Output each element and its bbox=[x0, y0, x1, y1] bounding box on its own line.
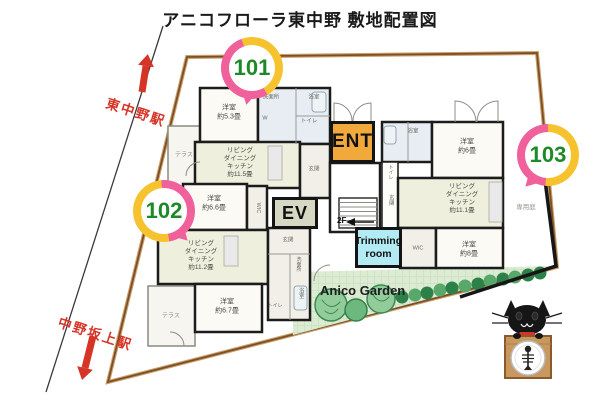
room-label-ldk-103: リビング ダイニング キッチン 約11.1畳 bbox=[446, 183, 479, 216]
page-title: アニコフローラ東中野 敷地配置図 bbox=[0, 6, 600, 31]
unit-number-103: 103 bbox=[525, 132, 571, 178]
room-label-wic-103: WIC bbox=[413, 246, 424, 253]
room-label-genkan-103: 玄関 bbox=[387, 195, 393, 206]
room-label-ldk-102: リビング ダイニング キッチン 約11.2畳 bbox=[185, 240, 218, 273]
unit-marker-101[interactable]: 101 bbox=[221, 37, 283, 99]
room-label-toilet-101: トイレ bbox=[301, 119, 318, 126]
trimming-room-box: Trimming room bbox=[355, 227, 402, 268]
room-label-bed1-102: 洋室 約6.6畳 bbox=[202, 195, 226, 213]
anico-garden-label: Anico Garden bbox=[320, 283, 405, 298]
room-label-closet-101: W bbox=[262, 116, 267, 123]
room-label-bath-102: 浴室 bbox=[297, 288, 303, 299]
room-label-bath-103: 浴室 bbox=[407, 129, 418, 136]
room-label-wic-102: WIC bbox=[254, 203, 260, 214]
room-label-terrace-101: テラス bbox=[175, 152, 193, 160]
floor2-label: 2F bbox=[337, 216, 346, 225]
room-label-bed-101: 洋室 約5.3畳 bbox=[217, 104, 241, 122]
room-label-toilet-102: トイレ bbox=[267, 303, 282, 309]
elevator-box: EV bbox=[272, 197, 318, 229]
room-label-toilet-103: トイレ bbox=[388, 165, 393, 180]
south-station-arrow bbox=[77, 336, 93, 380]
room-label-genkan-101: 玄関 bbox=[308, 167, 319, 174]
room-label-terrace-102: テラス bbox=[162, 313, 180, 321]
unit-number-101: 101 bbox=[229, 45, 275, 91]
unit-marker-102[interactable]: 102 bbox=[133, 180, 195, 242]
room-label-genkan-102: 玄関 bbox=[282, 238, 293, 245]
room-label-bath-101: 浴室 bbox=[308, 95, 319, 102]
unit-number-102: 102 bbox=[141, 188, 187, 234]
cat-illustration bbox=[492, 300, 562, 378]
unit-marker-103[interactable]: 103 bbox=[517, 124, 579, 186]
site-plan-page: アニコフローラ東中野 敷地配置図 東中野駅 中野坂上駅 洋室 約5.3畳 洗面所… bbox=[0, 0, 600, 400]
entrance-box: ENT bbox=[330, 121, 375, 163]
room-label-wash-102: 洗面所 bbox=[296, 257, 301, 272]
room-label-bed2-103: 洋室 約8畳 bbox=[460, 241, 478, 259]
room-label-ldk-101: リビング ダイニング キッチン 約11.5畳 bbox=[224, 147, 257, 180]
room-label-bed1-103: 洋室 約6畳 bbox=[458, 138, 476, 156]
room-label-bed2-102: 洋室 約6.7畳 bbox=[215, 298, 239, 316]
private-garden-label: 専用庭 bbox=[516, 201, 536, 211]
